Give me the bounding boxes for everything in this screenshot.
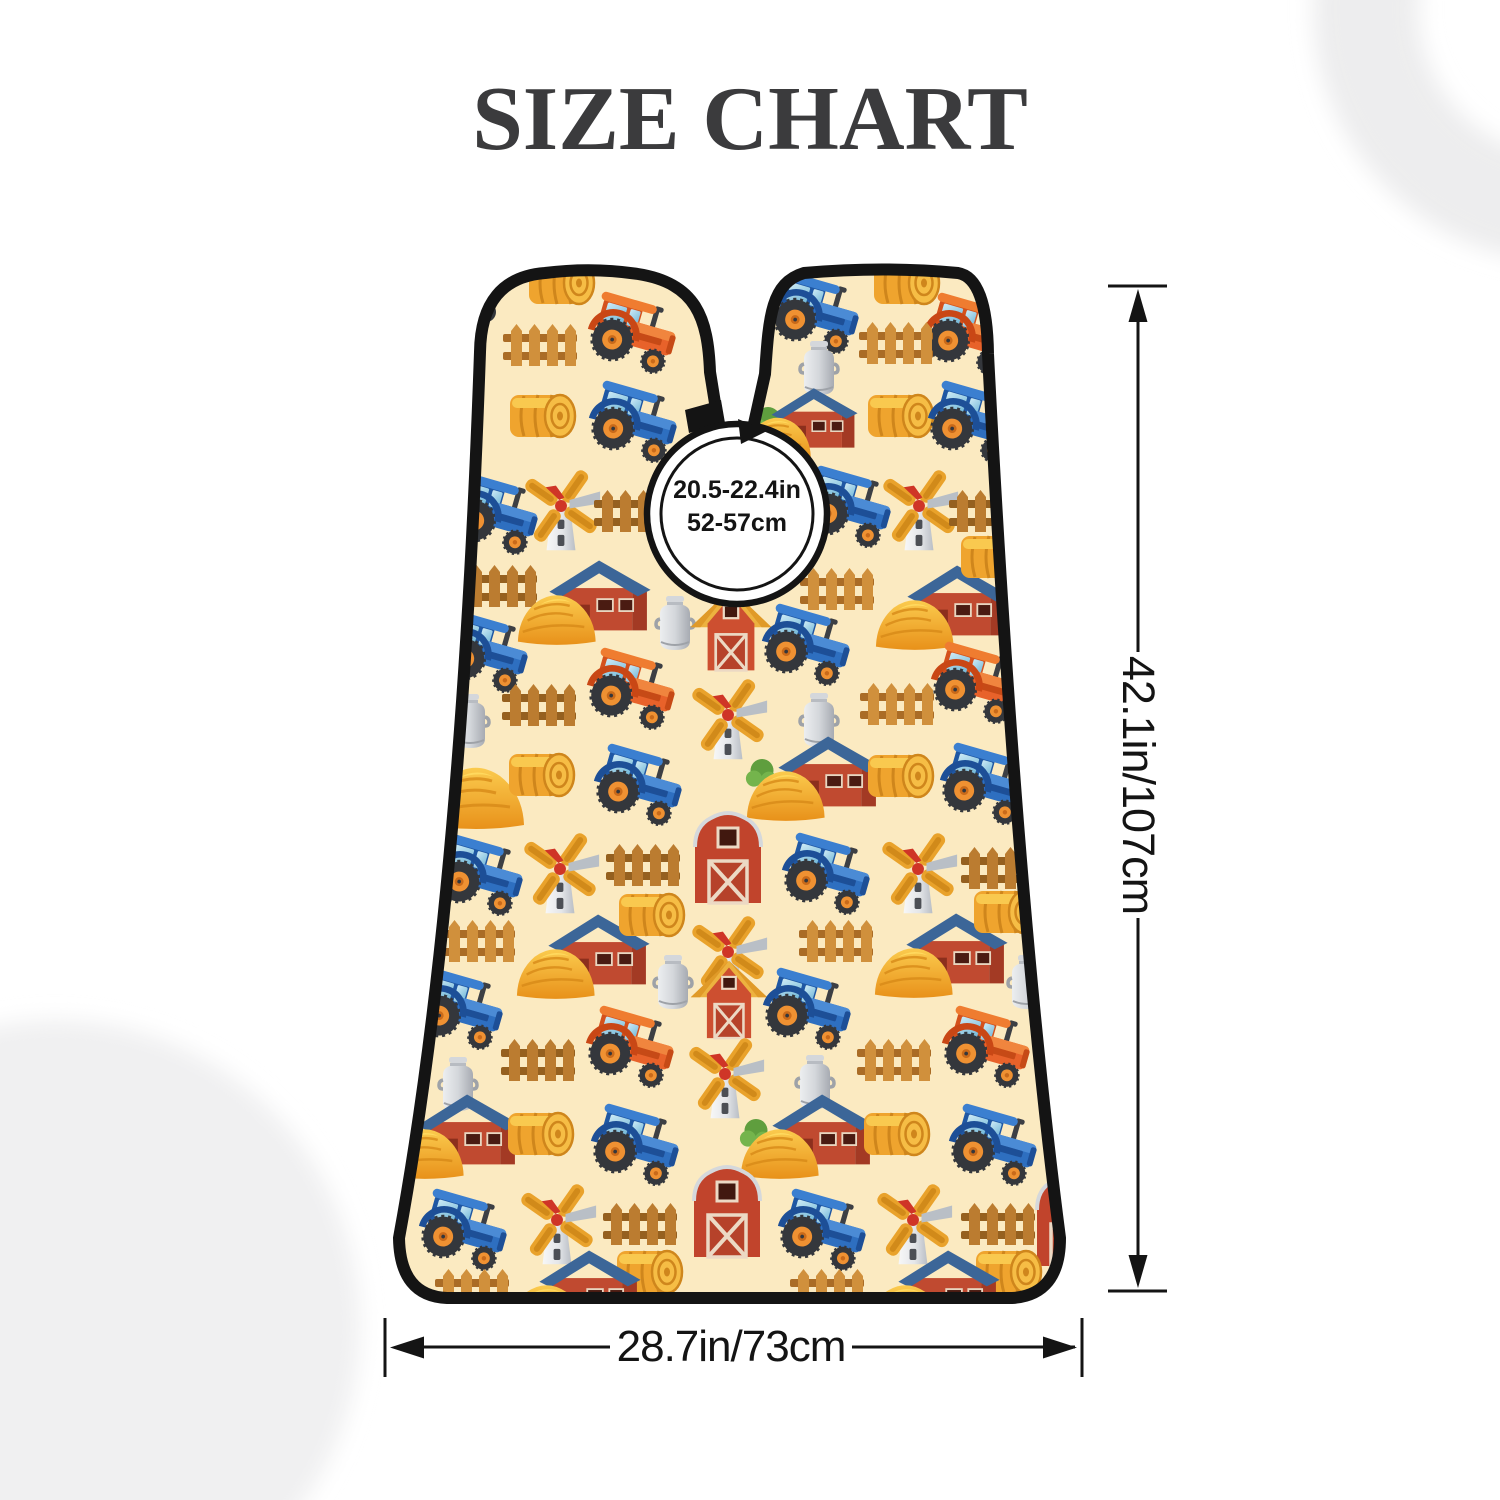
svg-text:28.7in/73cm: 28.7in/73cm <box>617 1322 846 1371</box>
svg-text:42.1in/107cm: 42.1in/107cm <box>1113 656 1164 914</box>
svg-text:SIZE CHART: SIZE CHART <box>472 68 1028 169</box>
svg-text:20.5-22.4in: 20.5-22.4in <box>673 476 801 504</box>
svg-text:52-57cm: 52-57cm <box>687 509 787 537</box>
